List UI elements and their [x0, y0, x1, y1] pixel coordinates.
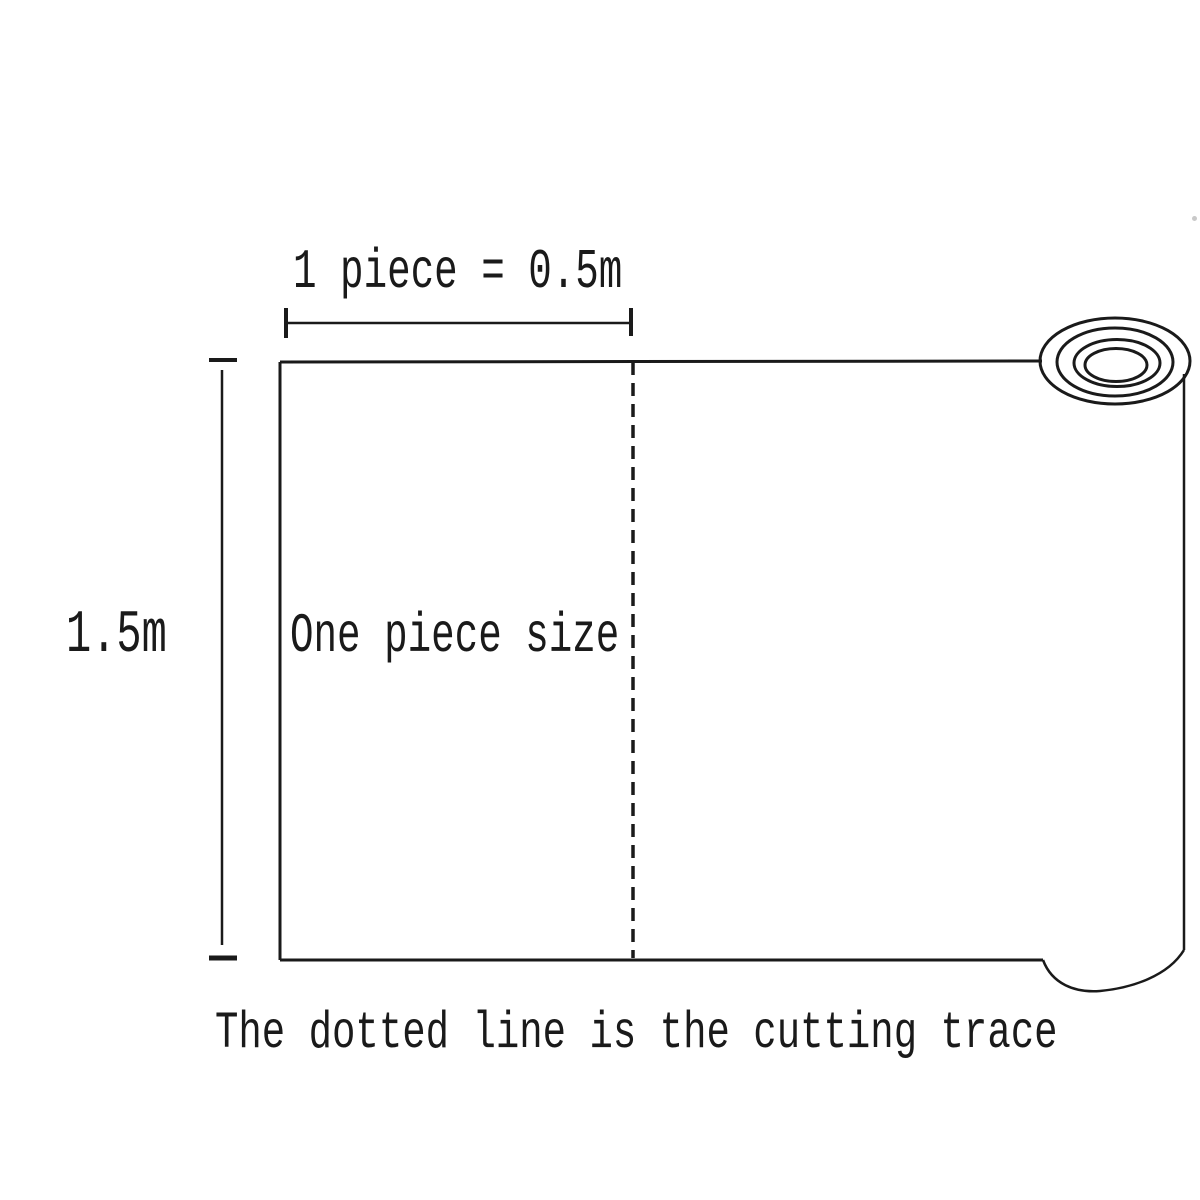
roll-ring-outer	[1040, 318, 1190, 404]
width-measure	[286, 308, 631, 338]
height-dimension-label: 1.5m	[66, 606, 167, 666]
sheet-size-label: One piece size	[290, 608, 619, 664]
paper-roll-icon	[1040, 318, 1190, 404]
size-diagram: 1 piece = 0.5m 1.5m One piece size The d…	[0, 0, 1200, 1200]
speck-artifact	[1192, 216, 1197, 221]
roll-ring-core	[1085, 349, 1147, 382]
sheet-outline	[280, 361, 1184, 991]
sheet-top-edge	[280, 361, 1042, 362]
cutting-trace-caption: The dotted line is the cutting trace	[215, 1008, 1058, 1060]
sheet-curl-edge	[1043, 950, 1184, 991]
height-measure	[209, 360, 237, 958]
width-dimension-label: 1 piece = 0.5m	[293, 244, 622, 300]
